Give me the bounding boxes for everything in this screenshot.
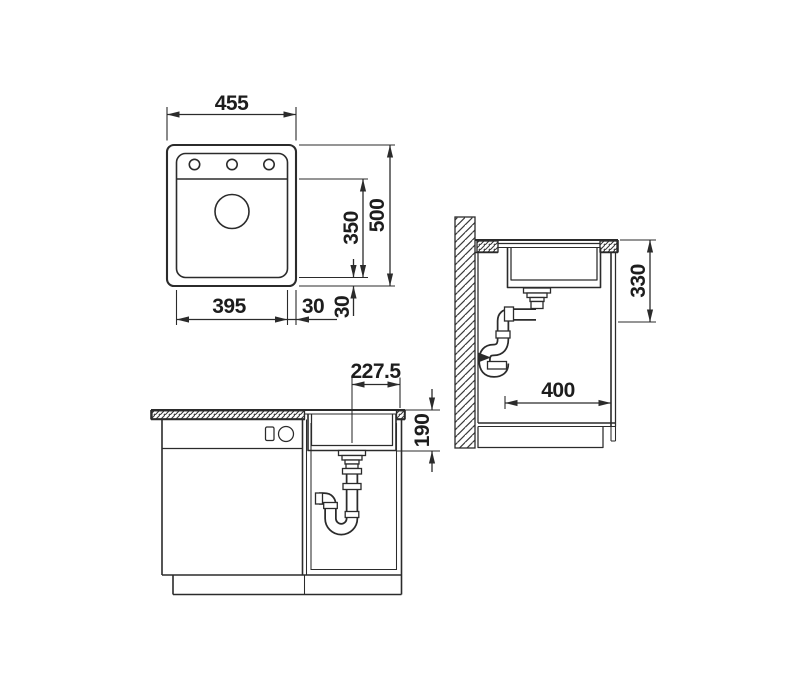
countertop-section [152, 411, 305, 419]
dimension-cabinet-clearance: 400 [505, 379, 611, 409]
drain-flange [339, 451, 366, 456]
dim-label-400: 400 [541, 379, 575, 402]
front-view: 227.5 190 [151, 360, 440, 595]
wall-section [455, 217, 475, 448]
pipe-joint [345, 512, 359, 518]
dimension-bowl-width: 395 [177, 290, 288, 325]
plan-view: 455 500 350 395 30 [167, 92, 395, 325]
tap-hole-icon [227, 159, 237, 169]
dimension-bottom-margin: 30 [331, 259, 354, 318]
countertop-section [397, 411, 405, 419]
dimension-bowl-length: 350 [299, 179, 368, 278]
pipe-joint [496, 331, 510, 338]
drain-flange [524, 288, 551, 293]
sink-basin-side [508, 248, 601, 288]
side-view: 330 400 [455, 217, 656, 448]
drawing-canvas: 455 500 350 395 30 [0, 0, 798, 678]
dimension-right-margin: 30 [288, 290, 338, 325]
dim-label-227-5: 227.5 [350, 360, 401, 383]
dim-label-330: 330 [627, 264, 650, 298]
pipe-joint [505, 307, 514, 321]
dim-label-30-bottom: 30 [331, 296, 354, 318]
control-panel-icon [266, 427, 275, 441]
tap-hole-icon [189, 159, 199, 169]
dim-label-350: 350 [340, 211, 363, 245]
pipe-joint [316, 493, 323, 504]
pipe-joint [343, 484, 361, 490]
technical-drawing: 455 500 350 395 30 [0, 0, 798, 678]
dim-label-190: 190 [411, 414, 434, 448]
pipe-joint [488, 362, 507, 370]
control-knob-icon [279, 427, 294, 442]
countertop-section [600, 241, 617, 252]
dimension-required-depth: 330 [618, 240, 656, 322]
plinth [173, 575, 402, 595]
dim-label-395: 395 [212, 295, 246, 318]
dim-label-500: 500 [366, 199, 389, 233]
tap-hole-icon [264, 159, 274, 169]
dimension-overall-width: 455 [167, 92, 296, 141]
plinth [478, 427, 603, 448]
dim-label-30-right: 30 [302, 295, 324, 318]
dishwasher-cabinet [162, 420, 303, 576]
sink-outline [167, 145, 296, 286]
dim-label-455: 455 [215, 92, 249, 115]
bowl-outline [177, 154, 288, 278]
pipe-joint [324, 503, 338, 509]
drain-icon [215, 195, 249, 229]
dimension-bowl-depth: 190 [397, 389, 440, 472]
dimension-drain-offset: 227.5 [350, 360, 401, 408]
countertop-section [477, 241, 498, 252]
